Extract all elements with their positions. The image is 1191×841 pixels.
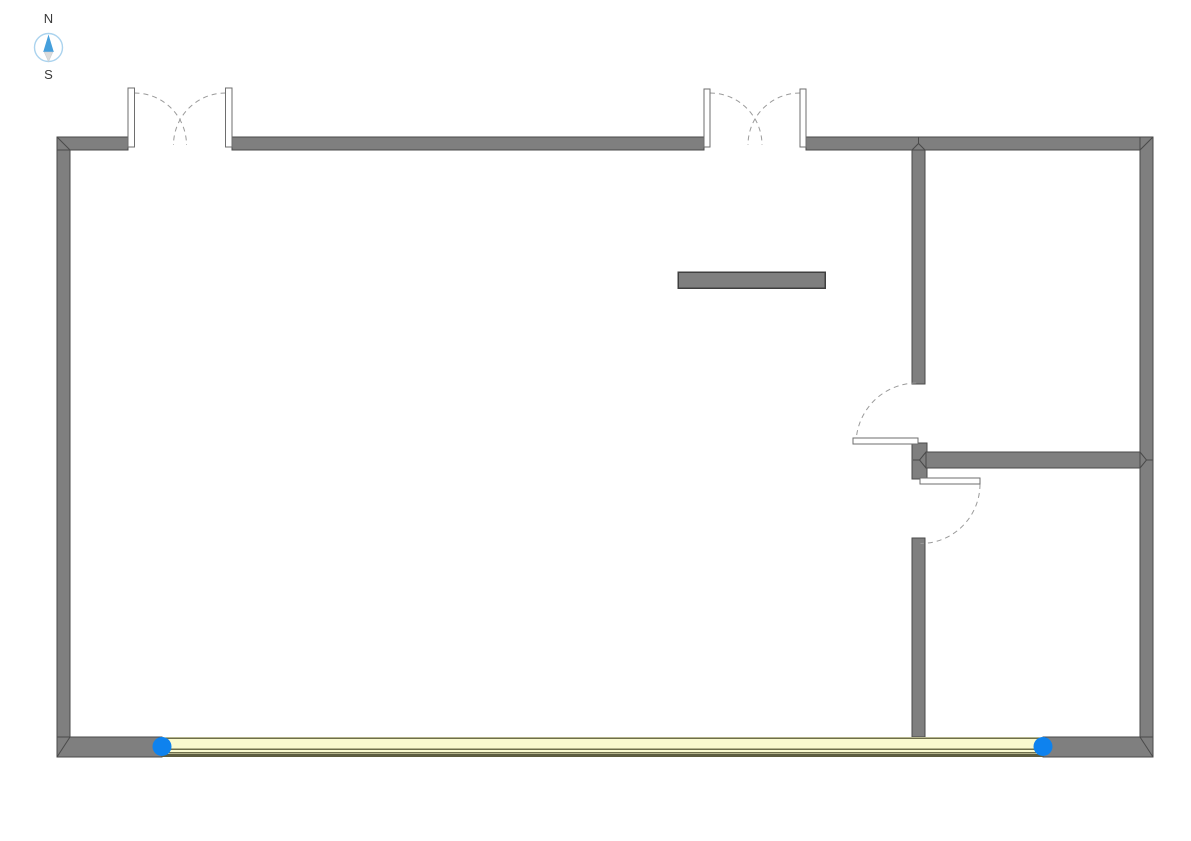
door-swing-arc	[856, 383, 917, 444]
wall-exterior-north-middle-segment[interactable]	[232, 137, 704, 150]
glazing-pane	[162, 737, 1043, 757]
wall-exterior-west[interactable]	[57, 137, 70, 757]
wall-south-stub-east[interactable]	[1043, 737, 1153, 757]
double-door-west[interactable]	[128, 88, 232, 147]
double-door-middle[interactable]	[704, 89, 806, 147]
wall-joint-seams	[57, 137, 1153, 757]
single-door-lower[interactable]	[920, 478, 980, 544]
floor-plan-view: N S	[0, 0, 1191, 841]
curtain-wall-south[interactable]	[162, 737, 1043, 757]
door-swing-arc-right	[174, 93, 226, 145]
door-swing-arc	[921, 484, 981, 544]
wall-exterior-east[interactable]	[1140, 137, 1153, 757]
wall-interior-junction-block[interactable]	[912, 443, 927, 479]
wall-exterior-north-east-segment[interactable]	[806, 137, 1153, 150]
floor-plan-canvas[interactable]: N S	[0, 0, 1191, 841]
single-door-upper[interactable]	[853, 383, 918, 444]
compass-north-label: N	[44, 11, 53, 26]
wall-interior-vertical-upper[interactable]	[912, 150, 925, 384]
selection-grip-east[interactable]	[1034, 737, 1053, 756]
selection-grip-west[interactable]	[153, 737, 172, 756]
door-leaf-right	[226, 88, 233, 147]
door-leaf	[920, 478, 980, 484]
door-swing-arc-left	[710, 93, 762, 145]
interior-walls	[912, 150, 1140, 737]
door-leaf	[853, 438, 918, 444]
door-swing-arc-left	[135, 93, 187, 145]
wall-interior-vertical-lower[interactable]	[912, 538, 925, 737]
wall-south-stub-west[interactable]	[57, 737, 162, 757]
wall-interior-horizontal[interactable]	[926, 452, 1140, 468]
door-swing-arc-right	[748, 93, 800, 145]
north-arrow-compass[interactable]: N S	[35, 11, 63, 82]
exterior-walls	[57, 137, 1153, 757]
door-leaf-right	[800, 89, 806, 147]
compass-south-label: S	[44, 67, 53, 82]
freestanding-wall-segment[interactable]	[678, 272, 825, 288]
door-leaf-left	[704, 89, 710, 147]
door-leaf-left	[128, 88, 135, 147]
